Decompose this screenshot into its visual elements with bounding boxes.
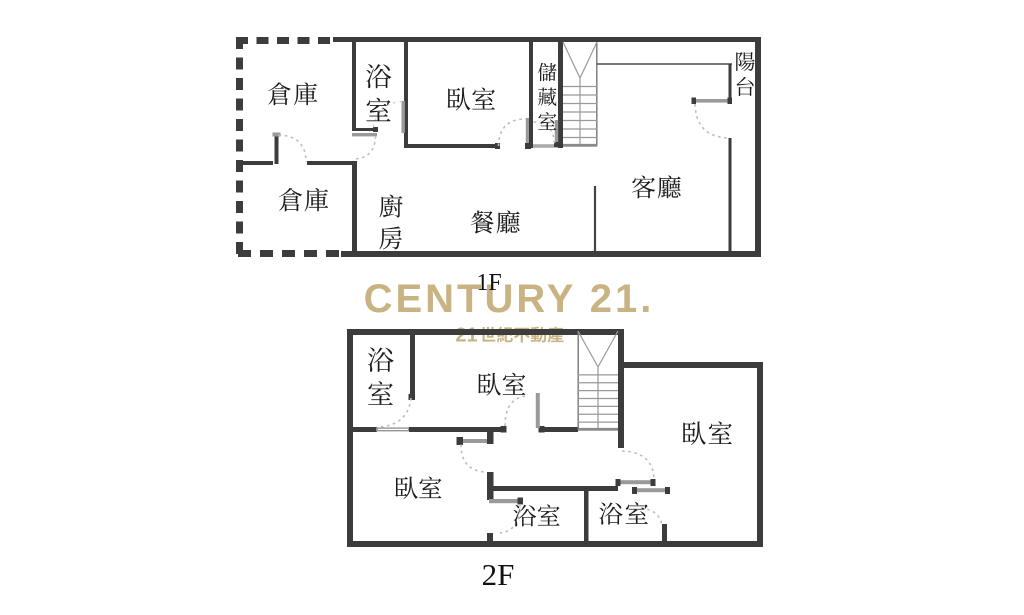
svg-text:21: 21 [455, 325, 477, 347]
svg-text:1F: 1F [476, 270, 501, 296]
svg-text:2F: 2F [482, 557, 515, 592]
svg-text:CENTURY 21.: CENTURY 21. [364, 277, 655, 321]
